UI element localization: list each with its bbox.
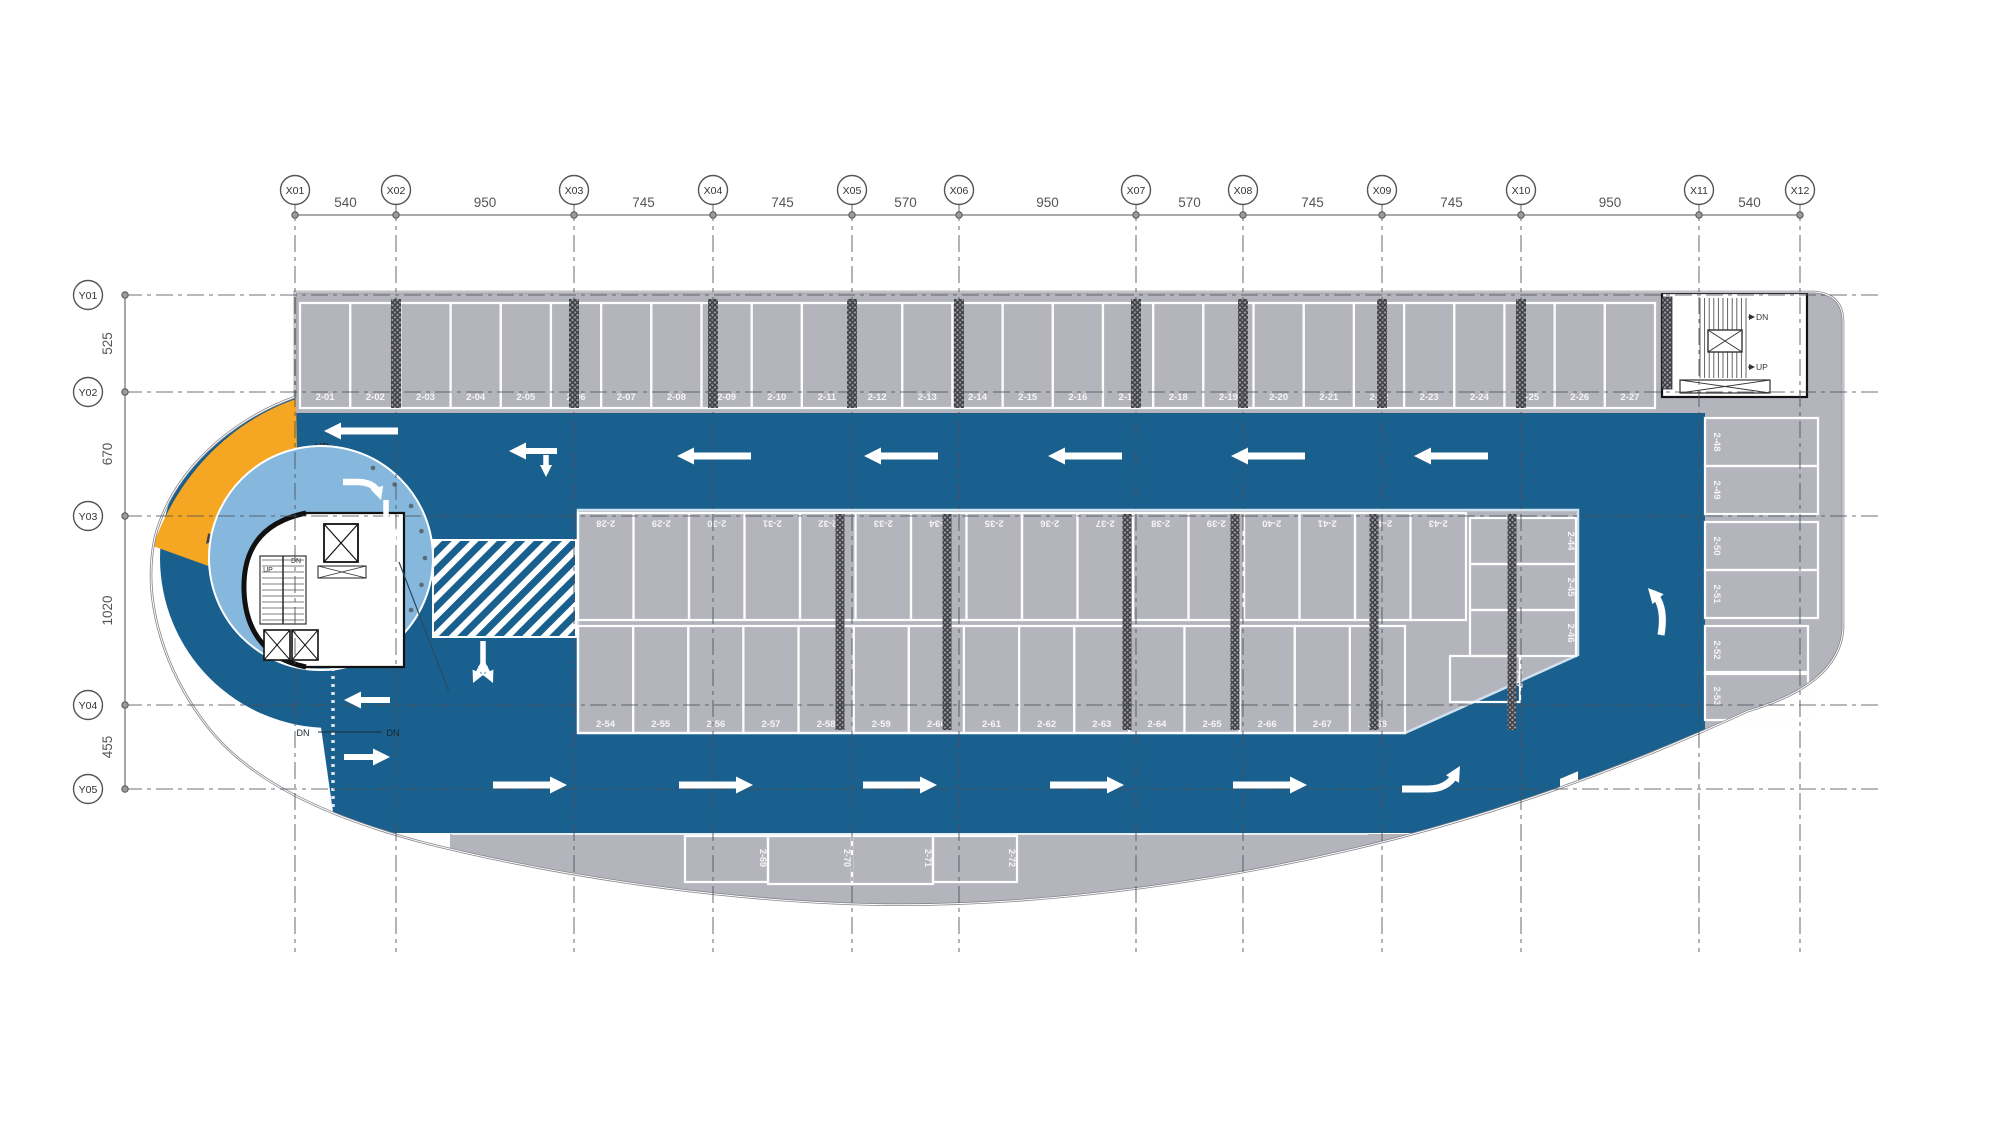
- stall-number: 2-14: [968, 392, 988, 403]
- building-footprint: UPDNUPDNDNDNUP: [151, 292, 1845, 905]
- ruler-dot: [122, 389, 128, 395]
- bollard-dot: [409, 504, 414, 509]
- y-dim-label: 670: [100, 443, 115, 466]
- stall-number: 2-55: [651, 719, 671, 730]
- stall-number: 2-63: [1092, 719, 1111, 730]
- stall-number: 2-39: [1207, 518, 1226, 529]
- grid-bubble-label: X04: [704, 185, 723, 197]
- stall-number: 2-29: [652, 518, 671, 529]
- bollard-dot: [419, 529, 424, 534]
- structural-column: [943, 514, 952, 730]
- bollard-dot: [409, 608, 414, 613]
- x-dim-label: 950: [474, 195, 497, 210]
- building-layer: UPDNUPDNDNDNUP: [151, 292, 1845, 905]
- stall-number: 2-66: [1258, 719, 1277, 730]
- stall-number: 2-41: [1317, 518, 1337, 529]
- stall-number: 2-52: [1711, 640, 1722, 659]
- stall-number: 2-13: [918, 392, 937, 403]
- stall-number: 2-62: [1037, 719, 1056, 730]
- grid-bubble-label: X01: [286, 185, 305, 197]
- grid-bubble-label: X09: [1373, 185, 1392, 197]
- ruler-dot: [1797, 212, 1803, 218]
- grid-bubble-label: X05: [843, 185, 862, 197]
- stair-dn-label: DN: [1756, 312, 1768, 322]
- stall-number: 2-43: [1429, 518, 1448, 529]
- ruler-dot: [710, 212, 716, 218]
- stall-number: 2-16: [1068, 392, 1087, 403]
- stall-number: 2-70: [842, 849, 852, 867]
- ruler-dot: [393, 212, 399, 218]
- ruler-dot: [1240, 212, 1246, 218]
- x-dim-label: 540: [1738, 195, 1761, 210]
- stall-number: 2-05: [516, 392, 536, 403]
- grid-bubble-label: Y04: [79, 700, 98, 712]
- stall-number: 2-23: [1420, 392, 1439, 403]
- ruler-dot: [849, 212, 855, 218]
- floorplan-canvas: UPDNUPDNDNDNUP 2-012-022-032-042-052-062…: [0, 0, 2000, 1125]
- stall-number: 2-24: [1470, 392, 1490, 403]
- structural-column: [1123, 514, 1132, 730]
- grid-bubble-label: X11: [1690, 185, 1708, 197]
- grid-bubble-label: Y05: [79, 784, 98, 796]
- x-dim-label: 745: [771, 195, 794, 210]
- structural-column: [1370, 514, 1379, 730]
- stall-number: 2-67: [1313, 719, 1332, 730]
- x-dim-label: 950: [1036, 195, 1059, 210]
- grid-bubble-label: X02: [387, 185, 406, 197]
- stall-number: 2-35: [984, 518, 1004, 529]
- x-dim-label: 570: [894, 195, 917, 210]
- stall-number: 2-10: [767, 392, 786, 403]
- x-dim-label: 950: [1599, 195, 1622, 210]
- stall-number: 2-57: [761, 719, 780, 730]
- top-aisle: [240, 413, 1705, 510]
- grid-bubble-label: X06: [950, 185, 969, 197]
- stall-number: 2-30: [707, 518, 726, 529]
- stall-number: 2-27: [1620, 392, 1639, 403]
- stall-number: 2-40: [1262, 518, 1281, 529]
- stall-number: 2-71: [923, 849, 933, 867]
- bollard-dot: [423, 556, 428, 561]
- ruler-dot: [292, 212, 298, 218]
- structural-column: [836, 514, 845, 730]
- stall-number: 2-59: [872, 719, 891, 730]
- stall-number: 2-03: [416, 392, 435, 403]
- stair-up-label: UP: [1756, 362, 1768, 372]
- stall-number: 2-64: [1147, 719, 1167, 730]
- grid-bubble-label: X08: [1234, 185, 1253, 197]
- grid-bubble-label: Y03: [79, 511, 98, 523]
- ramp-dn-label: DN: [387, 728, 400, 738]
- stair-block-wall-hatch: [1662, 297, 1672, 389]
- stall-number: 2-12: [868, 392, 887, 403]
- stall-number: 2-20: [1269, 392, 1288, 403]
- stall-number: 2-19: [1219, 392, 1238, 403]
- bottom-parking-band: [450, 834, 1435, 904]
- stall-number: 2-36: [1040, 518, 1059, 529]
- right-aisle: [1578, 413, 1705, 813]
- stall-number: 2-07: [617, 392, 636, 403]
- grid-bubble-label: X03: [565, 185, 584, 197]
- y-dim-label: 455: [100, 736, 115, 759]
- stall-number: 2-53: [1711, 686, 1722, 705]
- y-dim-label: 1020: [100, 595, 115, 625]
- x-dim-label: 745: [1440, 195, 1463, 210]
- stall-number: 2-02: [366, 392, 385, 403]
- stall-number: 2-09: [717, 392, 736, 403]
- stall-number: 2-32: [818, 518, 837, 529]
- stall-number: 2-46: [1565, 623, 1576, 642]
- x-dim-label: 570: [1178, 195, 1201, 210]
- ruler-dot: [1133, 212, 1139, 218]
- core-dn-label: DN: [291, 558, 301, 565]
- y-dim-label: 525: [100, 332, 115, 355]
- stall-number: 2-01: [316, 392, 336, 403]
- stall-number: 2-15: [1018, 392, 1038, 403]
- stall-number: 2-65: [1203, 719, 1223, 730]
- stall-number: 2-48: [1711, 432, 1722, 451]
- structural-column: [1231, 514, 1240, 730]
- stall-number: 2-04: [466, 392, 486, 403]
- stall-number: 2-72: [1007, 849, 1017, 867]
- stall-number: 2-69: [758, 849, 768, 867]
- ruler-dot: [1696, 212, 1702, 218]
- stall-number: 2-38: [1151, 518, 1170, 529]
- stall-number: 2-21: [1319, 392, 1339, 403]
- stall-number: 2-37: [1096, 518, 1115, 529]
- stall-number: 2-31: [762, 518, 782, 529]
- stall-number: 2-61: [982, 719, 1002, 730]
- stall-number: 2-45: [1565, 577, 1576, 597]
- stall-number: 2-51: [1711, 584, 1722, 604]
- x-dim-label: 540: [334, 195, 357, 210]
- ruler-dot: [1518, 212, 1524, 218]
- stall-number: 2-26: [1570, 392, 1589, 403]
- bollard-dot: [419, 583, 424, 588]
- structural-column: [1508, 514, 1517, 730]
- ruler-dot: [1379, 212, 1385, 218]
- x-dim-label: 745: [632, 195, 655, 210]
- stall-number: 2-11: [818, 392, 837, 403]
- stall-number: 2-56: [706, 719, 725, 730]
- ruler-dot: [122, 786, 128, 792]
- bollard-dot: [371, 466, 376, 471]
- core-up-label: UP: [263, 567, 273, 574]
- ruler-dot: [122, 702, 128, 708]
- ruler-dot: [956, 212, 962, 218]
- ruler-dot: [122, 292, 128, 298]
- grid-bubble-label: X10: [1512, 185, 1531, 197]
- parking-floor-plan: UPDNUPDNDNDNUP 2-012-022-032-042-052-062…: [0, 0, 2000, 1125]
- hatched-ramp-slope: [433, 540, 576, 637]
- grid-bubble-label: Y02: [79, 387, 98, 399]
- stall-number: 2-50: [1711, 536, 1722, 555]
- ruler-dot: [122, 513, 128, 519]
- stall-number: 2-33: [874, 518, 893, 529]
- stall-number: 2-44: [1565, 531, 1576, 551]
- ramp-dn-label: DN: [297, 728, 310, 738]
- stall-number: 2-49: [1711, 480, 1722, 499]
- stall-number: 2-18: [1169, 392, 1188, 403]
- right-parking-band: [1705, 413, 1845, 745]
- grid-bubble-label: Y01: [79, 290, 98, 302]
- stall-number: 2-54: [596, 719, 616, 730]
- stall-number: 2-28: [596, 518, 615, 529]
- stall-number: 2-58: [817, 719, 836, 730]
- ruler-dot: [571, 212, 577, 218]
- grid-bubble-label: X07: [1127, 185, 1146, 197]
- stall-number: 2-08: [667, 392, 686, 403]
- grid-bubble-label: X12: [1791, 185, 1810, 197]
- escalator-stair-block: DNUP: [1662, 293, 1807, 397]
- x-dim-label: 745: [1301, 195, 1324, 210]
